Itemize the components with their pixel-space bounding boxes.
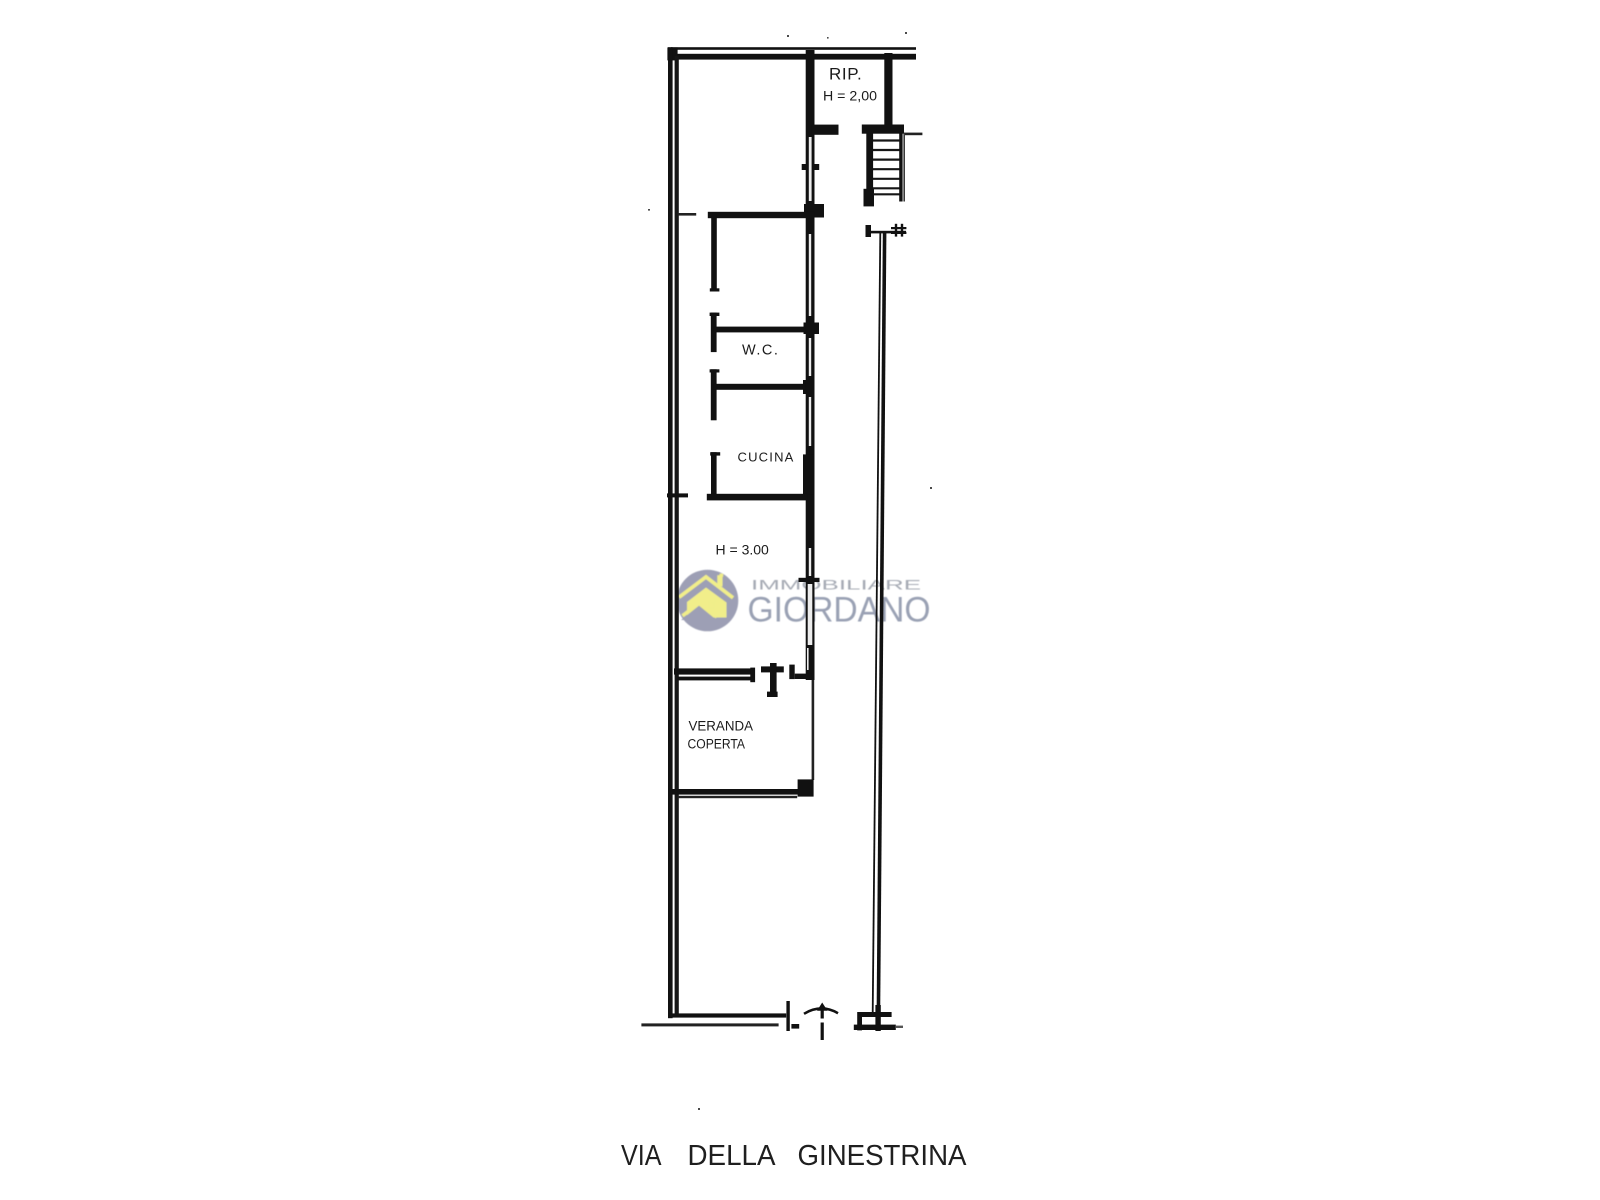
svg-text:DELLA: DELLA bbox=[688, 1140, 777, 1172]
svg-text:CUCINA: CUCINA bbox=[738, 450, 795, 465]
svg-text:VIA: VIA bbox=[621, 1140, 662, 1172]
svg-text:H = 2,00: H = 2,00 bbox=[823, 88, 877, 104]
svg-text:COPERTA: COPERTA bbox=[688, 737, 746, 752]
svg-text:RIP.: RIP. bbox=[829, 65, 862, 84]
svg-text:VERANDA: VERANDA bbox=[689, 719, 754, 734]
svg-text:GIORDANO: GIORDANO bbox=[748, 590, 931, 630]
svg-text:H = 3.00: H = 3.00 bbox=[716, 542, 770, 558]
svg-text:W.C.: W.C. bbox=[742, 343, 779, 359]
svg-text:GINESTRINA: GINESTRINA bbox=[798, 1140, 968, 1172]
